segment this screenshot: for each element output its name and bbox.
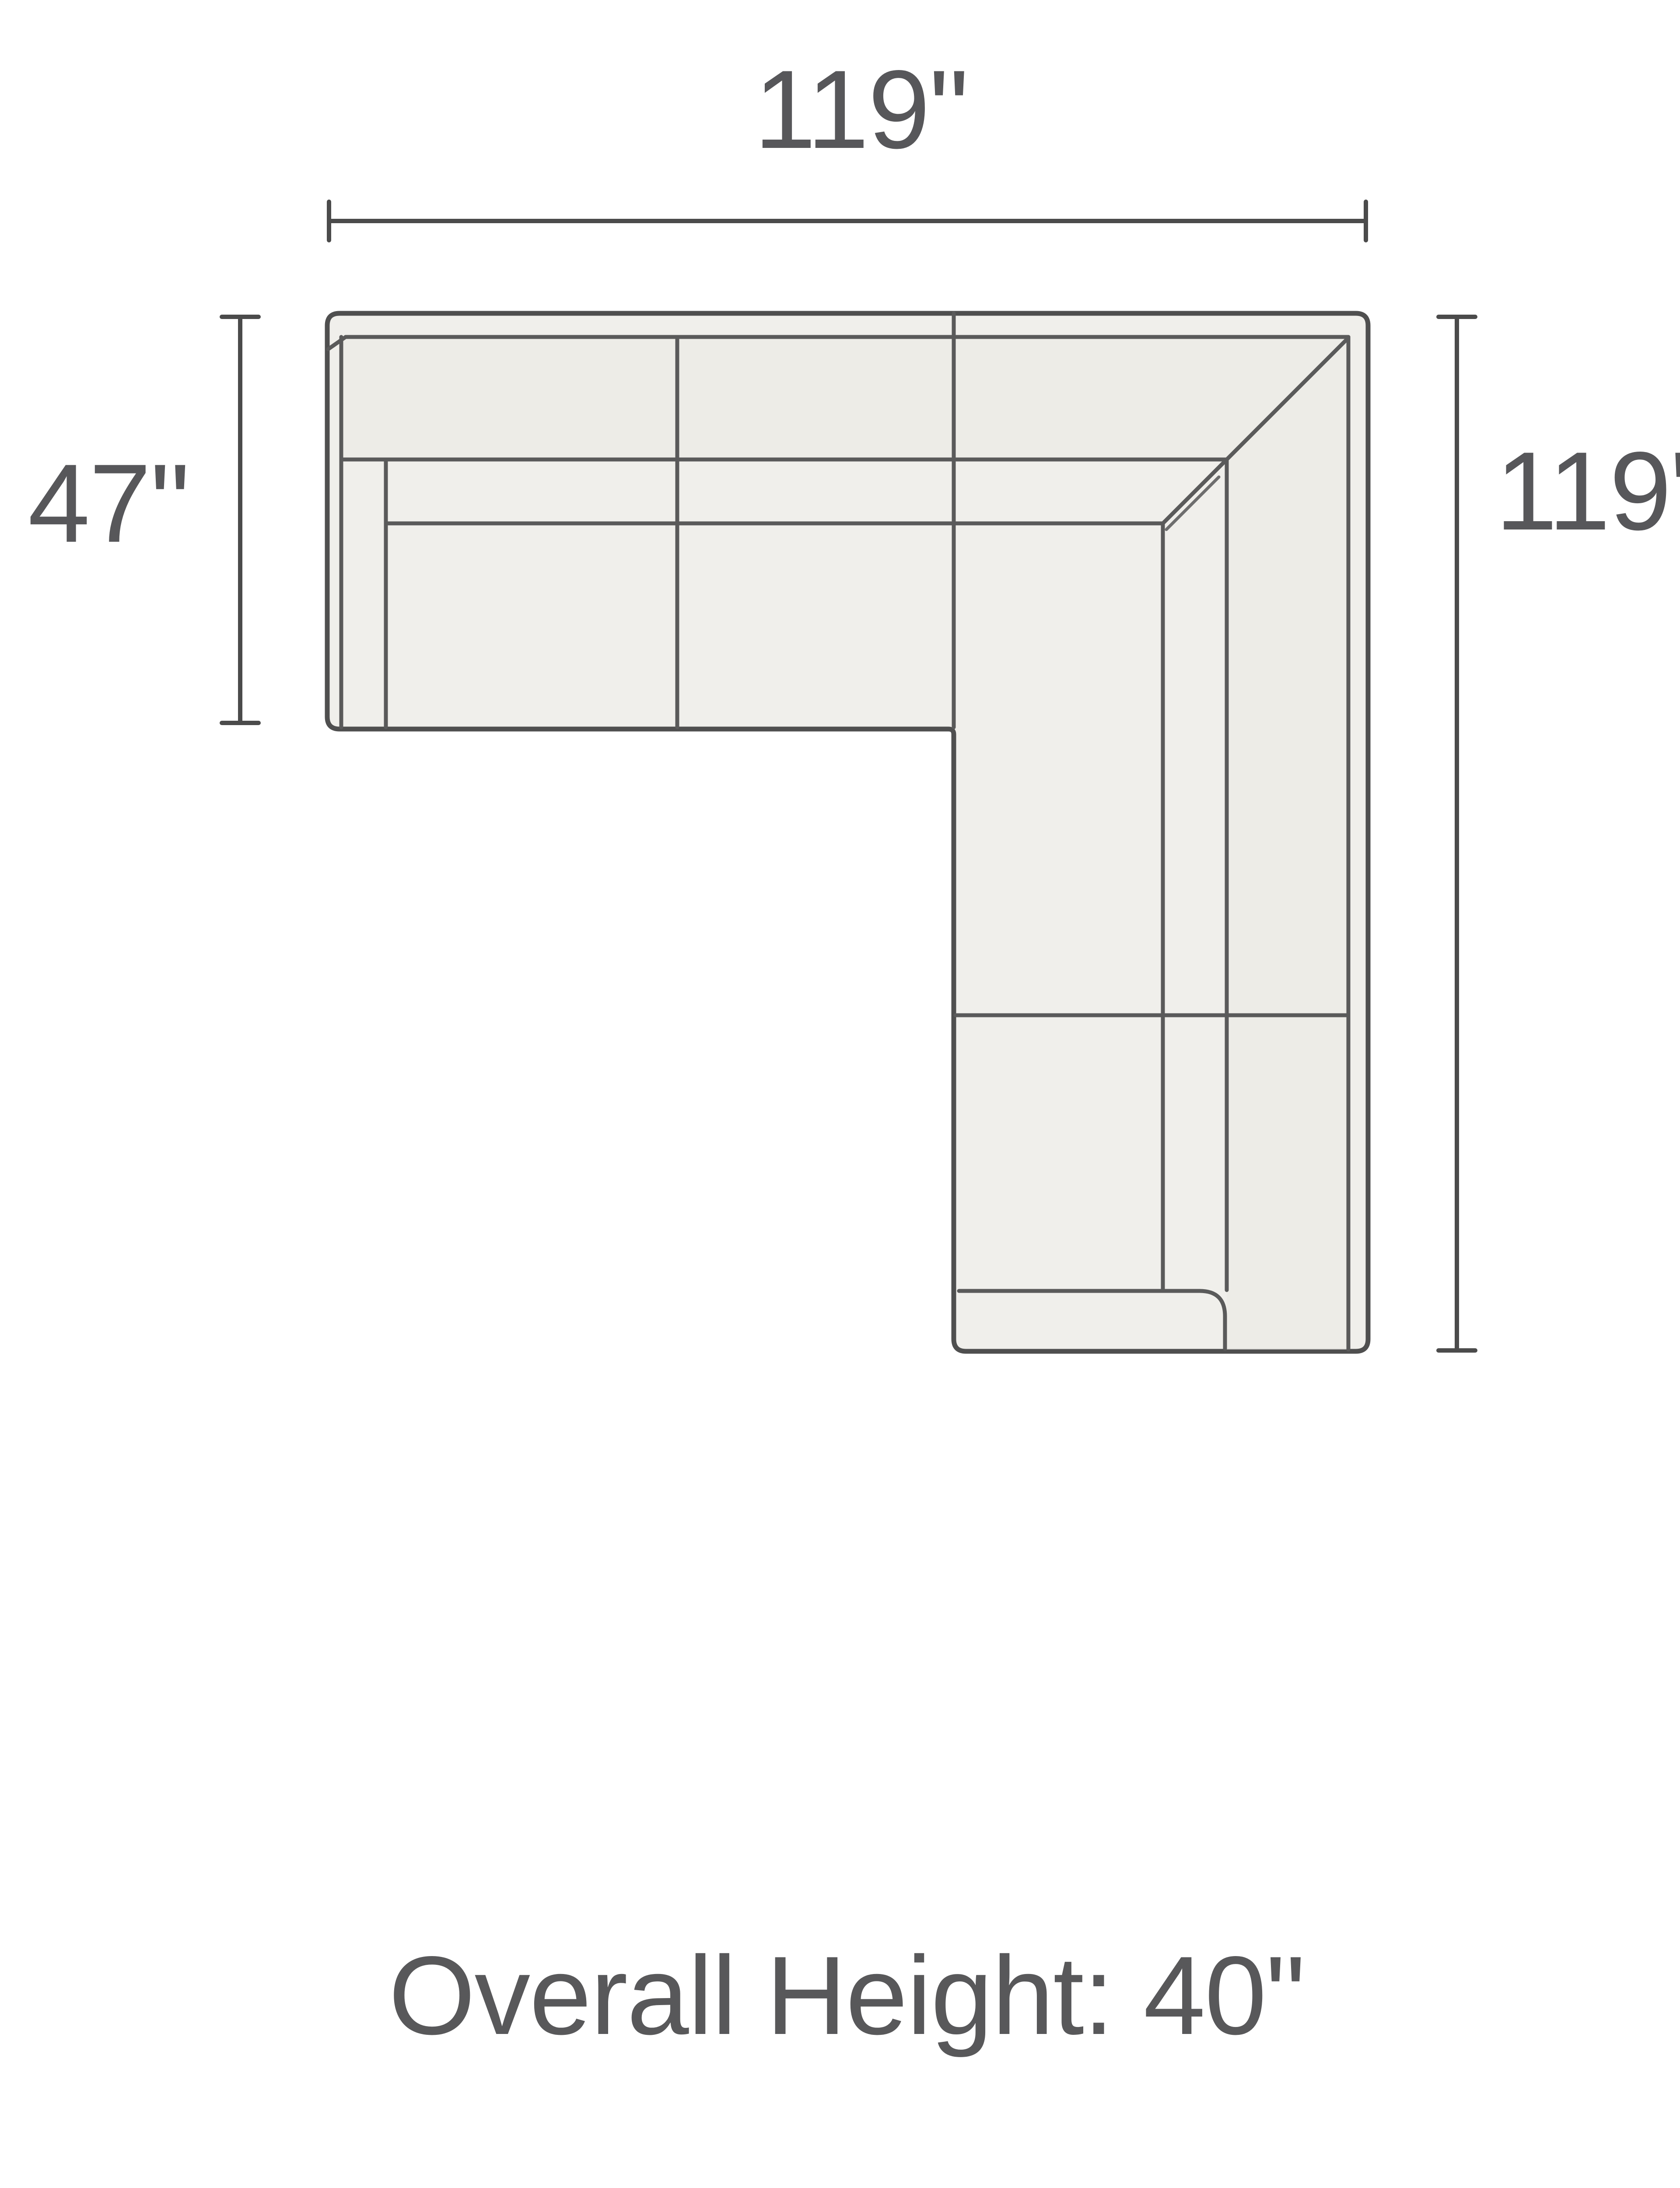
seat-height-text: Seat Height: 23" — [449, 2174, 1244, 2188]
right-length-label: 119" — [1495, 429, 1680, 554]
overall-height-text: Overall Height: 40" — [388, 1933, 1305, 2058]
sectional-sofa-drawing: 119" 47" 119" Overall Height: 40" Seat H… — [0, 0, 1680, 2188]
sofa-dimension-diagram: 119" 47" 119" Overall Height: 40" Seat H… — [0, 0, 1680, 2188]
right-dimension-line — [1438, 317, 1475, 1350]
top-dimension-line — [329, 202, 1366, 240]
sofa-outline — [327, 313, 1368, 1351]
left-depth-label: 47" — [28, 441, 189, 566]
top-width-label: 119" — [754, 47, 968, 172]
left-dimension-line — [222, 317, 259, 723]
